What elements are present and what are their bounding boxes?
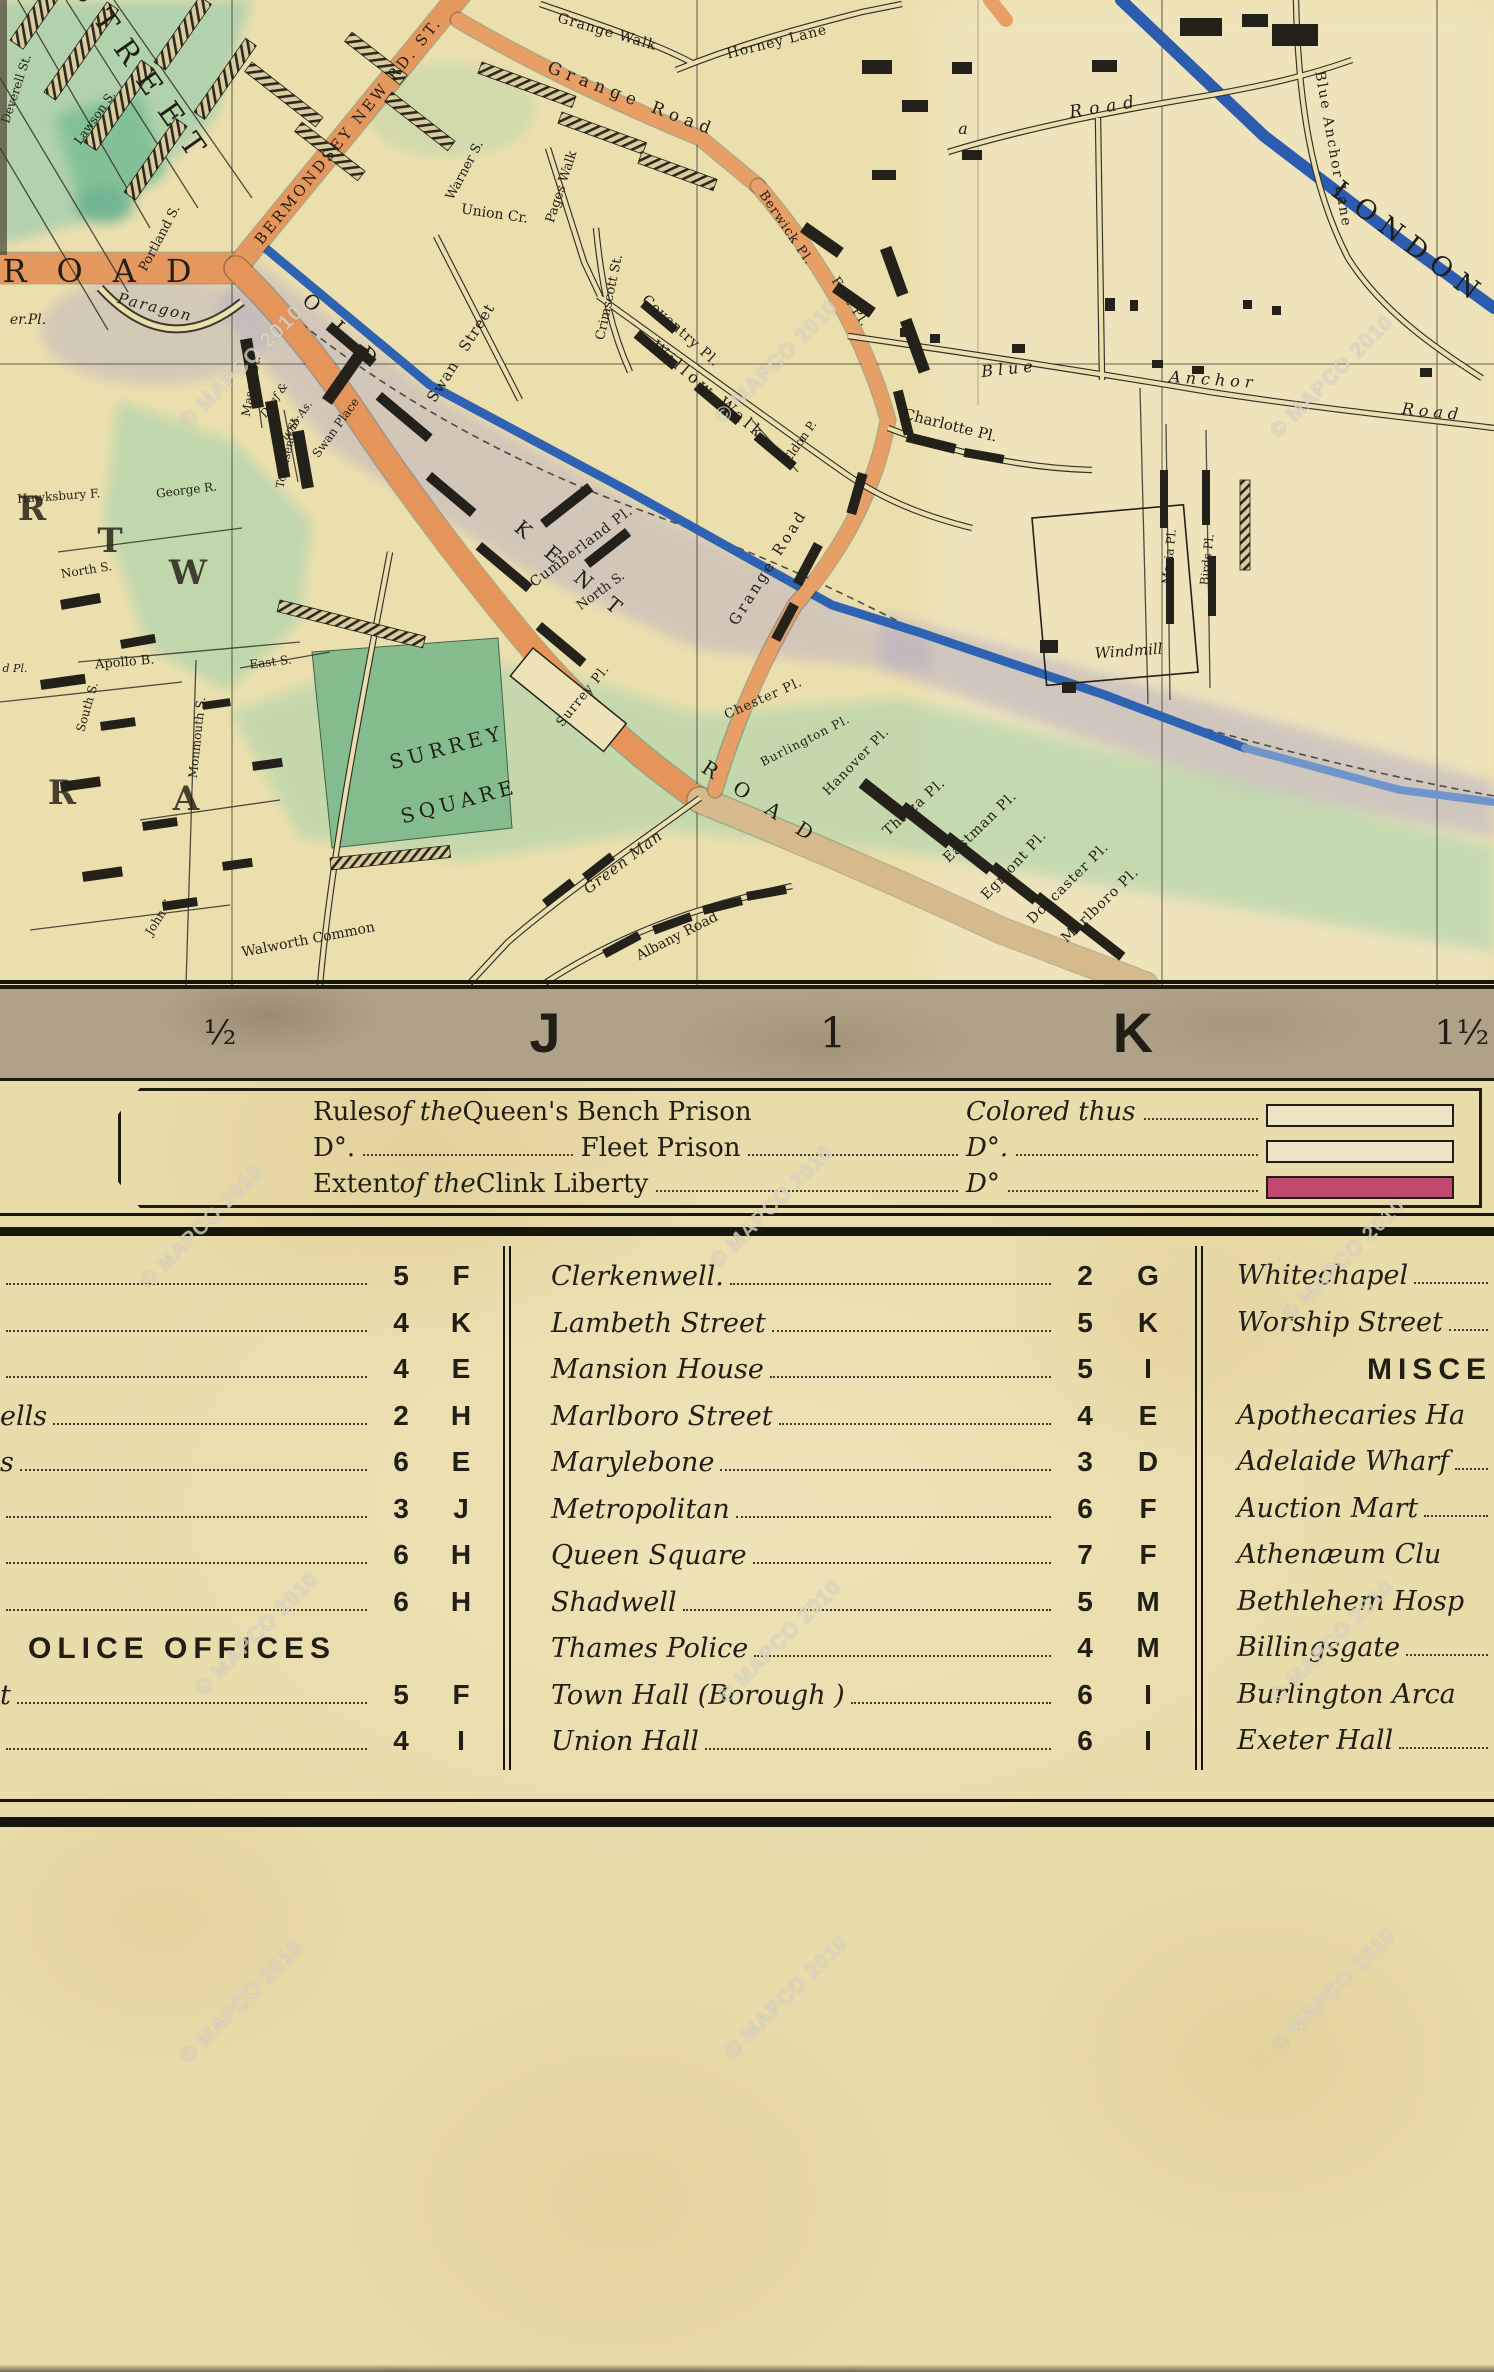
legend-row: Extent of the Clink LibertyD° bbox=[121, 1169, 1469, 1205]
map-label: d Pl. bbox=[3, 662, 28, 675]
index-grid-number: 3 bbox=[1057, 1446, 1113, 1478]
index-divider-left bbox=[503, 1246, 511, 1770]
index-grid-letter: I bbox=[429, 1725, 493, 1757]
prison-rules-legend: Rules of the Queen's Bench PrisonColored… bbox=[118, 1088, 1482, 1208]
legend-text: Colored thus bbox=[966, 1097, 1136, 1127]
index-grid-number: 4 bbox=[373, 1353, 429, 1385]
legend-text: of the bbox=[400, 1169, 476, 1199]
legend-text: Fleet Prison bbox=[581, 1133, 741, 1163]
index-leader-dots bbox=[6, 1330, 367, 1332]
map-canvas: STREETROADer.Pl.ParagonUnion Cr.Warner S… bbox=[0, 0, 1494, 985]
legend-leader-dots bbox=[748, 1154, 958, 1156]
index-leader-dots bbox=[53, 1423, 367, 1425]
index-grid-number: 5 bbox=[1057, 1307, 1113, 1339]
index-row: Exeter Hall bbox=[1207, 1717, 1494, 1764]
index-grid-number: 4 bbox=[373, 1307, 429, 1339]
index-entry-name: Clerkenwell. bbox=[551, 1261, 724, 1292]
index-row: Lambeth Street5K bbox=[515, 1299, 1197, 1346]
map-label: ROAD bbox=[2, 252, 221, 290]
index-entry-name: t bbox=[0, 1680, 11, 1711]
mapco-watermark: © MAPCO 2010 bbox=[176, 1936, 309, 2069]
legend-label: Rules of the Queen's Bench Prison bbox=[313, 1097, 966, 1127]
index-entry-name: Thames Police bbox=[551, 1633, 748, 1664]
index-middle-column: Clerkenwell.2GLambeth Street5KMansion Ho… bbox=[515, 1252, 1197, 1764]
scale-item: 1½ bbox=[1435, 1013, 1490, 1053]
index-leader-dots bbox=[6, 1609, 367, 1611]
legend-colored-thus: D° bbox=[966, 1169, 1266, 1199]
index-row: Town Hall (Borough )6I bbox=[515, 1671, 1197, 1718]
legend-leader-dots bbox=[656, 1190, 958, 1192]
map-sheet: STREETROADer.Pl.ParagonUnion Cr.Warner S… bbox=[0, 0, 1494, 2372]
index-row: Clerkenwell.2G bbox=[515, 1252, 1197, 1299]
index-grid-letter: E bbox=[1113, 1400, 1183, 1432]
thick-rule-top bbox=[0, 1227, 1494, 1236]
legend-label: Extent of the Clink Liberty bbox=[313, 1169, 966, 1199]
legend-leader-dots bbox=[1016, 1154, 1258, 1156]
index-grid-letter: F bbox=[429, 1679, 493, 1711]
index-row: Whitechapel bbox=[1207, 1252, 1494, 1299]
index-row: 6H bbox=[0, 1578, 505, 1625]
index-entry-name: Whitechapel bbox=[1237, 1260, 1408, 1291]
legend-text: D°. bbox=[966, 1133, 1008, 1163]
map-label: W bbox=[168, 553, 208, 593]
index-grid-number: 7 bbox=[1057, 1539, 1113, 1571]
map-label: er.Pl. bbox=[10, 312, 46, 328]
mapco-watermark: © MAPCO 2010 bbox=[721, 1931, 854, 2064]
index-grid-letter: J bbox=[429, 1493, 493, 1525]
index-grid-letter: K bbox=[1113, 1307, 1183, 1339]
legend-text: of the bbox=[386, 1097, 462, 1127]
legend-text: Extent bbox=[313, 1169, 400, 1199]
index-entry-name: Town Hall (Borough ) bbox=[551, 1680, 845, 1711]
index-grid-number: 2 bbox=[373, 1400, 429, 1432]
index-leader-dots bbox=[1455, 1468, 1488, 1470]
index-leader-dots bbox=[683, 1609, 1051, 1611]
legend-text: D°. bbox=[313, 1133, 355, 1163]
index-grid-number: 6 bbox=[1057, 1493, 1113, 1525]
thick-rule-bottom bbox=[0, 1817, 1494, 1827]
index-divider-right bbox=[1195, 1246, 1203, 1770]
index-row: 4K bbox=[0, 1299, 505, 1346]
index-row: s6E bbox=[0, 1438, 505, 1485]
index-grid-number: 6 bbox=[373, 1539, 429, 1571]
legend-label: D°.Fleet Prison bbox=[313, 1133, 966, 1163]
mapco-watermark: © MAPCO 2010 bbox=[1268, 1924, 1401, 2057]
index-leader-dots bbox=[720, 1469, 1051, 1471]
legend-text: Queen's Bench Prison bbox=[463, 1097, 752, 1127]
index-entry-name: Exeter Hall bbox=[1237, 1725, 1393, 1756]
index-section-header-row: MISCE bbox=[1207, 1345, 1494, 1392]
legend-leader-dots bbox=[363, 1154, 573, 1156]
scale-item: ½ bbox=[204, 1013, 237, 1053]
index-row: Athenæum Clu bbox=[1207, 1531, 1494, 1578]
map-bottom-border bbox=[0, 980, 1494, 984]
index-entry-name: Metropolitan bbox=[551, 1494, 730, 1525]
index-entry-name: Adelaide Wharf bbox=[1237, 1446, 1449, 1477]
index-entry-name: Lambeth Street bbox=[551, 1308, 766, 1339]
index-leader-dots bbox=[6, 1562, 367, 1564]
index-right-column: WhitechapelWorship StreetMISCEApothecari… bbox=[1207, 1252, 1494, 1764]
index-row: Worship Street bbox=[1207, 1299, 1494, 1346]
index-grid-letter: F bbox=[1113, 1539, 1183, 1571]
map-label: R bbox=[48, 773, 77, 813]
index-grid-letter: H bbox=[429, 1400, 493, 1432]
legend-color-swatch bbox=[1266, 1104, 1454, 1127]
index-grid-letter: I bbox=[1113, 1725, 1183, 1757]
index-leader-dots bbox=[20, 1469, 367, 1471]
index-leader-dots bbox=[770, 1376, 1051, 1378]
index-leader-dots bbox=[6, 1283, 367, 1285]
map-label: A bbox=[172, 779, 200, 819]
legend-text: Rules bbox=[313, 1097, 386, 1127]
index-grid-number: 5 bbox=[373, 1260, 429, 1292]
index-entry-name: Bethlehem Hosp bbox=[1237, 1586, 1464, 1617]
scale-item: 1 bbox=[820, 1008, 847, 1057]
index-grid-letter: M bbox=[1113, 1632, 1183, 1664]
index-leader-dots bbox=[1449, 1329, 1488, 1331]
index-grid-letter: E bbox=[429, 1446, 493, 1478]
index-row: ells2H bbox=[0, 1392, 505, 1439]
index-grid-letter: E bbox=[429, 1353, 493, 1385]
index-grid-letter: I bbox=[1113, 1679, 1183, 1711]
legend-text: Clink Liberty bbox=[476, 1169, 648, 1199]
index-leader-dots bbox=[6, 1748, 367, 1750]
index-entry-name: s bbox=[0, 1447, 14, 1478]
index-section-header-row: OLICE OFFICES bbox=[0, 1624, 505, 1671]
index-grid-number: 6 bbox=[373, 1446, 429, 1478]
index-row: Mansion House5I bbox=[515, 1345, 1197, 1392]
index-leader-dots bbox=[772, 1330, 1051, 1332]
legend-color-swatch bbox=[1266, 1140, 1454, 1163]
index-row: Marlboro Street4E bbox=[515, 1392, 1197, 1439]
index-leader-dots bbox=[753, 1562, 1051, 1564]
index-entry-name: Apothecaries Ha bbox=[1237, 1400, 1465, 1431]
legend-color-swatch bbox=[1266, 1176, 1454, 1199]
index-entry-name: Athenæum Clu bbox=[1237, 1539, 1441, 1570]
index-grid-letter: I bbox=[1113, 1353, 1183, 1385]
map-label: T bbox=[97, 521, 122, 561]
index-leader-dots bbox=[779, 1423, 1051, 1425]
scale-item: K bbox=[1113, 1000, 1153, 1065]
index-leader-dots bbox=[754, 1655, 1051, 1657]
scan-edge-left bbox=[0, 0, 7, 255]
index-entry-name: Auction Mart bbox=[1237, 1493, 1418, 1524]
legend-colored-thus: D°. bbox=[966, 1133, 1266, 1163]
thin-rule-bottom bbox=[0, 1799, 1494, 1802]
index-grid-number: 4 bbox=[1057, 1400, 1113, 1432]
index-grid-number: 6 bbox=[1057, 1725, 1113, 1757]
index-leader-dots bbox=[17, 1702, 367, 1704]
index-row: 4E bbox=[0, 1345, 505, 1392]
index-row: t5F bbox=[0, 1671, 505, 1718]
index-row: 6H bbox=[0, 1531, 505, 1578]
index-grid-number: 5 bbox=[373, 1679, 429, 1711]
index-entry-name: ells bbox=[0, 1401, 47, 1432]
index-row: Metropolitan6F bbox=[515, 1485, 1197, 1532]
legend-row: Rules of the Queen's Bench PrisonColored… bbox=[121, 1097, 1469, 1133]
legend-row: D°.Fleet PrisonD°. bbox=[121, 1133, 1469, 1169]
index-entry-name: Union Hall bbox=[551, 1726, 699, 1757]
index-grid-letter: D bbox=[1113, 1446, 1183, 1478]
legend-leader-dots bbox=[1144, 1118, 1258, 1120]
index-grid-letter: F bbox=[1113, 1493, 1183, 1525]
index-grid-letter: H bbox=[429, 1539, 493, 1571]
index-row: Billingsgate bbox=[1207, 1624, 1494, 1671]
legend-text: D° bbox=[966, 1169, 1000, 1199]
index-row: Apothecaries Ha bbox=[1207, 1392, 1494, 1439]
index-row: Bethlehem Hosp bbox=[1207, 1578, 1494, 1625]
index-row: 5F bbox=[0, 1252, 505, 1299]
index-grid-letter: K bbox=[429, 1307, 493, 1339]
map-area: STREETROADer.Pl.ParagonUnion Cr.Warner S… bbox=[0, 0, 1494, 985]
index-entry-name: Shadwell bbox=[551, 1587, 677, 1618]
index-grid-number: 4 bbox=[373, 1725, 429, 1757]
index-grid-letter: H bbox=[429, 1586, 493, 1618]
index-row: 3J bbox=[0, 1485, 505, 1532]
index-section-header: OLICE OFFICES bbox=[28, 1632, 336, 1666]
index-leader-dots bbox=[705, 1748, 1051, 1750]
index-entry-name: Billingsgate bbox=[1237, 1632, 1400, 1663]
map-label: R bbox=[18, 489, 47, 529]
index-row: Queen Square7F bbox=[515, 1531, 1197, 1578]
index-entry-name: Marylebone bbox=[551, 1447, 714, 1478]
index-entry-name: Mansion House bbox=[551, 1354, 764, 1385]
street-index: 5F4K4Eells2Hs6E3J6H6HOLICE OFFICESt5F4I … bbox=[0, 1252, 1494, 1764]
index-leader-dots bbox=[851, 1702, 1051, 1704]
index-leader-dots bbox=[6, 1516, 367, 1518]
index-row: Adelaide Wharf bbox=[1207, 1438, 1494, 1485]
scale-grid-band: ½J1K1½ bbox=[0, 985, 1494, 1081]
index-entry-name: Queen Square bbox=[551, 1540, 747, 1571]
index-leader-dots bbox=[1406, 1654, 1488, 1656]
index-leader-dots bbox=[1399, 1747, 1488, 1749]
index-row: Burlington Arca bbox=[1207, 1671, 1494, 1718]
index-grid-letter: M bbox=[1113, 1586, 1183, 1618]
index-grid-letter: G bbox=[1113, 1260, 1183, 1292]
index-row: Marylebone3D bbox=[515, 1438, 1197, 1485]
index-entry-name: Worship Street bbox=[1237, 1307, 1443, 1338]
index-row: Auction Mart bbox=[1207, 1485, 1494, 1532]
index-entry-name: Burlington Arca bbox=[1237, 1679, 1456, 1710]
scan-edge-bottom bbox=[0, 2364, 1494, 2372]
index-grid-number: 6 bbox=[1057, 1679, 1113, 1711]
index-entry-name: Marlboro Street bbox=[551, 1401, 773, 1432]
index-grid-number: 2 bbox=[1057, 1260, 1113, 1292]
index-leader-dots bbox=[736, 1516, 1051, 1518]
legend-leader-dots bbox=[1008, 1190, 1258, 1192]
index-leader-dots bbox=[1414, 1282, 1488, 1284]
index-leader-dots bbox=[6, 1376, 367, 1378]
index-grid-number: 5 bbox=[1057, 1353, 1113, 1385]
index-grid-letter: F bbox=[429, 1260, 493, 1292]
thin-rule-top bbox=[0, 1213, 1494, 1216]
index-row: Union Hall6I bbox=[515, 1717, 1197, 1764]
legend-colored-thus: Colored thus bbox=[966, 1097, 1266, 1127]
index-left-column: 5F4K4Eells2Hs6E3J6H6HOLICE OFFICESt5F4I bbox=[0, 1252, 505, 1764]
index-leader-dots bbox=[730, 1283, 1051, 1285]
map-label: a bbox=[958, 119, 968, 138]
index-grid-number: 4 bbox=[1057, 1632, 1113, 1664]
index-section-header: MISCE bbox=[1367, 1353, 1492, 1387]
index-grid-number: 5 bbox=[1057, 1586, 1113, 1618]
index-grid-number: 6 bbox=[373, 1586, 429, 1618]
index-row: Thames Police4M bbox=[515, 1624, 1197, 1671]
index-grid-number: 3 bbox=[373, 1493, 429, 1525]
scale-item: J bbox=[529, 1000, 560, 1065]
index-leader-dots bbox=[1424, 1515, 1488, 1517]
index-row: Shadwell5M bbox=[515, 1578, 1197, 1625]
index-row: 4I bbox=[0, 1717, 505, 1764]
